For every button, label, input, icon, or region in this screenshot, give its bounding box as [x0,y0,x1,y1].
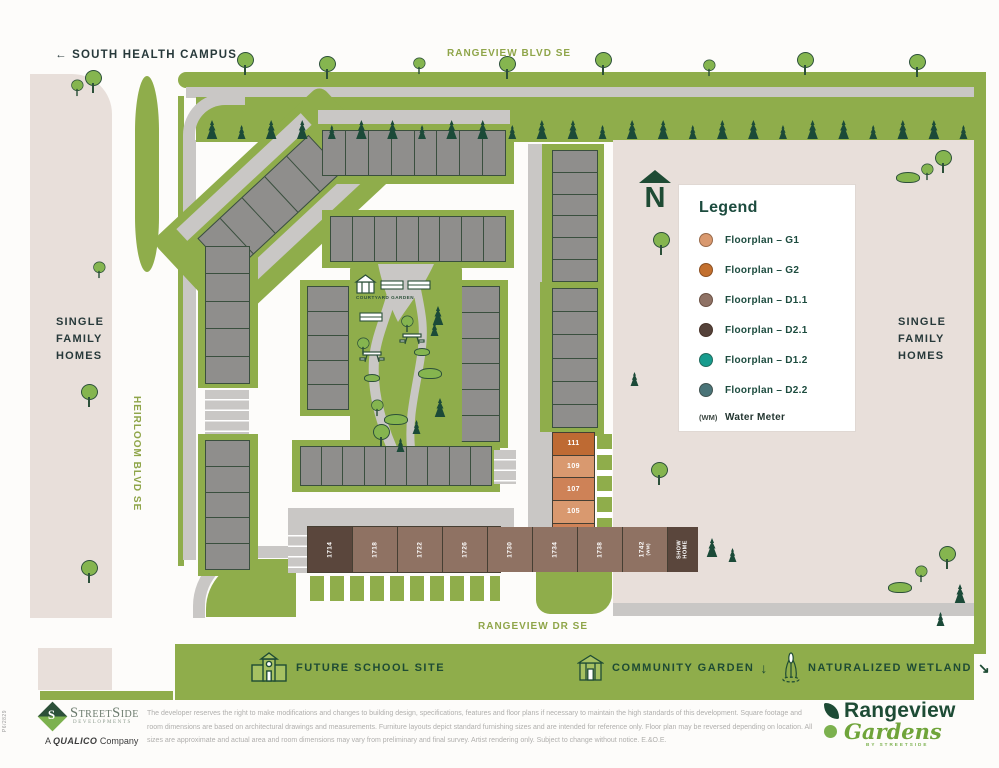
building-col-left-a [205,246,250,384]
legend-card: Legend Floorplan – G1Floorplan – G2Floor… [679,185,855,431]
bush-icon [384,414,408,425]
bottom-green-strip [40,691,173,700]
floorplan-color-swatch [699,263,713,277]
building-unit [406,447,427,485]
legend-water-meter: (WM) Water Meter [699,412,855,423]
tree-icon [401,316,414,334]
lot-105: 105 [553,500,594,523]
building-unit [553,404,597,427]
bush-icon [418,368,442,379]
building-unit [364,447,385,485]
qualico-name: QUALICO [53,736,97,746]
wetland-cattail-icon [780,652,802,684]
tree-icon [80,384,98,409]
lot-number: 107 [567,486,580,493]
building-unit [206,301,249,328]
pine-tree-icon [418,125,427,139]
building-unit [553,172,597,194]
right-area-road-edge [613,603,974,616]
lot-number: 109 [567,463,580,470]
building-unit [206,356,249,383]
tree-icon [80,560,98,585]
water-meter-symbol: (WM) [699,413,725,422]
building-unit [206,492,249,518]
lot-1718: 1718 [352,527,397,572]
tree-icon [318,56,336,81]
naturalized-wetland-arrow: ↘ [978,660,990,677]
building-unit [553,259,597,281]
qualico-line: A QUALICO Company [45,736,138,746]
building-unit [301,447,321,485]
parking-stalls-bottom-row [494,450,516,484]
pine-tree-icon [386,120,398,139]
legend-item-label: Floorplan – G2 [725,265,799,276]
yard-tabs-bottom-lots [310,576,500,601]
building-unit [461,217,483,261]
building-unit [553,215,597,237]
building-unit [308,335,348,360]
tree-icon [93,262,106,280]
streetside-s: S [48,707,55,723]
pine-tree-icon [206,120,218,139]
lot-1742: 1742(WM) [622,527,667,572]
parking-stalls-bottom-lots [288,526,307,573]
pine-tree-row [206,101,968,139]
building-unit [553,311,597,334]
qualico-company: Company [100,736,139,746]
north-letter: N [637,185,673,211]
building-unit [553,289,597,311]
legend-item: Floorplan – D1.2 [699,345,855,375]
qualico-a: A [45,736,51,746]
building-unit [553,194,597,216]
pine-tree-icon [265,120,277,139]
lot-number-rotated: 1738 [596,528,603,572]
community-garden-arrow: ↓ [760,660,767,676]
building-col-mid-right [458,286,500,442]
bush-icon [888,582,912,593]
lot-111: 111 [553,433,594,455]
right-green-border [974,72,986,654]
building-col-right-lower [552,288,598,428]
building-unit [553,151,597,172]
floorplan-color-swatch [699,293,713,307]
building-unit [206,247,249,273]
lots-bottom-row: 17141718172217261730173417381742(WM)SHOW… [307,526,501,573]
naturalized-wetland-label: NATURALIZED WETLAND [808,662,972,674]
bush-icon [896,172,920,183]
lot-number-rotated: 1726 [461,528,468,572]
building-unit [449,447,470,485]
tree-icon [921,164,934,182]
tree-icon [371,400,384,418]
tree-icon [413,58,426,76]
brand-script: Gardens [844,719,942,744]
rangeview-blvd-green-band [178,72,978,88]
pine-tree-icon [626,120,638,139]
lot-1714: 1714 [308,527,352,572]
tree-icon [372,424,390,449]
tree-icon [650,462,668,487]
pine-tree-icon [688,125,697,139]
pine-tree-icon [536,120,548,139]
building-unit [459,338,499,364]
lot-number: 105 [567,508,580,515]
pine-tree-icon [355,120,367,139]
lot-109: 109 [553,455,594,478]
legend-item-label: Floorplan – G1 [725,235,799,246]
legend-item: Floorplan – D2.1 [699,315,855,345]
floorplan-color-swatch [699,353,713,367]
building-unit [206,517,249,543]
lot-1726: 1726 [442,527,487,572]
disclaimer-text: The developer reserves the right to make… [147,707,819,748]
lot-number-rotated: 1722 [416,528,423,572]
legend-item-label: Floorplan – D2.1 [725,325,808,336]
tree-icon [236,52,254,77]
building-unit [459,312,499,338]
pine-tree-icon [327,125,336,139]
lot-number-rotated: 1730 [506,528,513,572]
floorplan-color-swatch [699,323,713,337]
lot-1738: 1738 [577,527,622,572]
courtyard-garden-label: COURTYARD GARDEN [354,295,416,301]
tree-icon [908,54,926,79]
lot-107: 107 [553,477,594,500]
lot-wm: (WM) [646,528,651,572]
legend-item-label: Floorplan – D1.1 [725,295,808,306]
tree-icon [915,566,928,584]
legend-item: Floorplan – G2 [699,255,855,285]
north-arrow: N [637,170,673,211]
building-unit [459,389,499,415]
brand-leaf-icon [824,703,839,719]
single-family-left-label: SINGLE FAMILY HOMES [56,314,112,365]
legend-items: Floorplan – G1Floorplan – G2Floorplan – … [699,225,855,405]
building-row-mid [330,216,506,262]
lot-1722: 1722 [397,527,442,572]
pine-tree-icon [959,125,968,139]
building-unit [206,543,249,569]
tree-icon [71,80,84,98]
tree-icon [357,338,370,356]
pine-tree-icon [716,120,728,139]
lot-1734: 1734 [532,527,577,572]
legend-item-label: Floorplan – D1.2 [725,355,808,366]
pine-tree-icon [446,120,458,139]
tree-icon [938,546,956,571]
pine-tree-icon [897,120,909,139]
lot-1730: 1730 [487,527,532,572]
building-unit [342,447,363,485]
heirloom-blvd-label: HEIRLOOM BLVD SE [131,396,142,531]
future-school-label: FUTURE SCHOOL SITE [296,662,445,674]
streetside-developments: DEVELOPMENTS [73,720,132,725]
rangeview-dr-label: RANGEVIEW DR SE [478,621,588,632]
single-family-area-left-lower [38,648,112,690]
building-unit [308,311,348,336]
brand-by-line: BY STREETSIDE [866,742,989,747]
building-unit [206,273,249,300]
pine-tree-icon [296,120,308,139]
building-unit [352,217,374,261]
floorplan-color-swatch [699,233,713,247]
school-icon [250,652,288,684]
pine-tree-icon [237,125,246,139]
grass-patch-right-lots-end [536,566,612,614]
streetside-diamond-icon: S [38,702,68,732]
building-unit [439,217,461,261]
naturalized-wetland-item: NATURALIZED WETLAND ↘ [780,652,990,684]
pine-tree-icon [508,125,517,139]
building-unit [553,237,597,259]
building-unit [470,447,491,485]
building-unit [553,334,597,357]
pine-tree-icon [747,120,759,139]
tree-icon [796,52,814,77]
building-unit [459,415,499,441]
building-unit [308,287,348,311]
building-unit [427,447,448,485]
legend-title: Legend [699,199,855,217]
building-unit [308,384,348,409]
print-code: P6/2829 [2,710,8,732]
legend-item: Floorplan – G1 [699,225,855,255]
building-unit [553,381,597,404]
building-unit [483,217,505,261]
lot-number-rotated: 1718 [371,528,378,572]
building-row-bottom [300,446,492,486]
building-unit [374,217,396,261]
water-meter-label: Water Meter [725,412,785,423]
lot-number-rotated: 1742(WM) [639,528,652,572]
community-garden-label: COMMUNITY GARDEN [612,662,754,674]
tree-icon [594,52,612,77]
tree-icon [84,70,102,95]
pine-tree-icon [928,120,940,139]
tree-icon [652,232,670,257]
building-unit [206,441,249,466]
bush-icon [364,374,380,382]
building-col-right-upper [552,150,598,282]
lot-number: 111 [567,440,579,447]
building-col-left-b [205,440,250,570]
building-unit [206,466,249,492]
lot-number-rotated: 1714 [326,528,333,572]
pine-tree-icon [567,120,579,139]
building-unit [396,217,418,261]
lot-number-rotated: SHOW HOME [677,535,690,565]
building-unit [553,358,597,381]
parking-stalls-left [205,390,249,434]
lot-show-home: SHOW HOME [667,527,698,572]
building-unit [206,328,249,355]
greenhouse-icon [356,275,375,293]
legend-item: Floorplan – D1.1 [699,285,855,315]
single-family-right-label: SINGLE FAMILY HOMES [898,314,956,365]
building-unit [459,287,499,312]
building-unit [385,447,406,485]
pine-tree-icon [598,125,607,139]
pine-tree-icon [838,120,850,139]
pine-tree-icon [778,125,787,139]
bush-icon [414,348,430,356]
pine-tree-icon [477,120,489,139]
brand-dot-icon [824,725,837,738]
rangeview-gardens-logo: Rangeview Gardens BY STREETSIDE [824,699,989,747]
tree-icon [934,150,952,175]
driveway-bottom-lots [288,508,514,528]
future-school-item: FUTURE SCHOOL SITE [250,652,445,684]
tree-icon [498,56,516,81]
pine-tree-icon [657,120,669,139]
south-health-campus-label: ← SOUTH HEALTH CAMPUS [55,47,237,65]
legend-item: Floorplan – D2.2 [699,375,855,405]
tree-icon [703,60,716,78]
building-unit [418,217,440,261]
building-unit [331,217,352,261]
community-garden-item: COMMUNITY GARDEN ↓ [577,654,767,682]
pine-tree-icon [807,120,819,139]
pine-tree-icon [869,125,878,139]
legend-item-label: Floorplan – D2.2 [725,385,808,396]
lot-number-rotated: 1734 [551,528,558,572]
floorplan-color-swatch [699,383,713,397]
community-garden-icon [577,654,604,682]
building-unit [308,360,348,385]
building-unit [459,363,499,389]
building-col-mid-left [307,286,349,410]
building-unit [321,447,342,485]
